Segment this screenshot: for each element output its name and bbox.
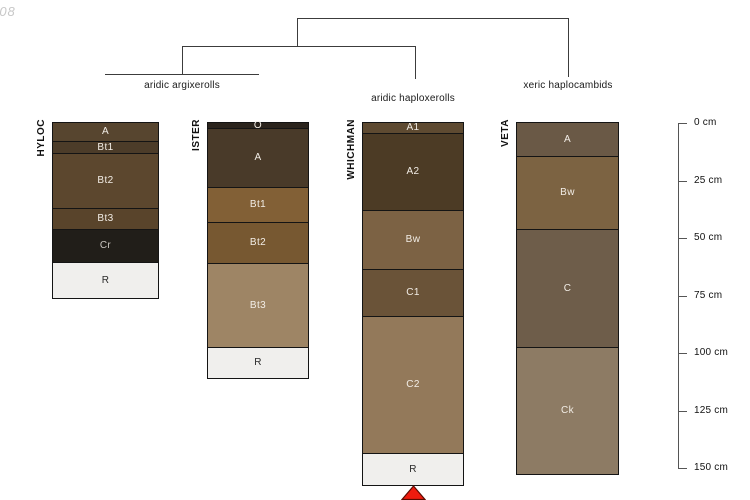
horizon-label: Bt3 [250, 301, 266, 311]
depth-tick [678, 296, 687, 297]
depth-tick [678, 353, 687, 354]
horizon-label: Bt2 [250, 238, 266, 248]
horizon-band: Bt2 [53, 153, 158, 208]
horizon-label: Bt2 [97, 176, 113, 186]
soil-profile-column: ABwCCk [516, 122, 619, 475]
marker-triangle-icon [401, 485, 426, 500]
horizon-label: C2 [406, 380, 420, 390]
depth-tick-label: 75 cm [694, 290, 722, 302]
depth-tick [678, 123, 687, 124]
horizon-band: R [363, 453, 463, 485]
depth-tick-label: 150 cm [694, 462, 728, 474]
depth-tick [678, 238, 687, 239]
depth-tick-label: 50 cm [694, 232, 722, 244]
horizon-label: C1 [406, 288, 420, 298]
group-label-aridic-haploxerolls: aridic haploxerolls [328, 93, 498, 104]
horizon-band: C2 [363, 316, 463, 453]
horizon-label: R [409, 465, 417, 475]
profile-name-label: HYLOC [36, 119, 47, 157]
horizon-band: A [208, 128, 308, 187]
dendrogram-line [568, 18, 569, 77]
horizon-label: Bw [406, 235, 421, 245]
soil-profile-column: ABt1Bt2Bt3CrR [52, 122, 159, 299]
horizon-label: A [564, 135, 571, 145]
horizon-band: Bt2 [208, 222, 308, 263]
dendrogram-line [297, 18, 569, 19]
horizon-label: R [254, 358, 262, 368]
horizon-band: Cr [53, 229, 158, 262]
dendrogram-line [182, 46, 416, 47]
horizon-label: A [254, 153, 261, 163]
depth-tick-label: 25 cm [694, 175, 722, 187]
group-label-xeric-haplocambids: xeric haplocambids [483, 80, 653, 91]
horizon-band: Bt1 [53, 141, 158, 153]
dendrogram-line [415, 46, 416, 79]
soil-profile-column: A1A2BwC1C2R [362, 122, 464, 486]
soil-profile-column: OABt1Bt2Bt3R [207, 122, 309, 379]
horizon-band: R [208, 347, 308, 378]
horizon-label: Bt3 [97, 214, 113, 224]
dendrogram-line [182, 46, 183, 75]
horizon-band: Bt1 [208, 187, 308, 222]
horizon-band: Bt3 [53, 208, 158, 229]
figure-canvas: -08 aridic argixerolls aridic haploxerol… [0, 0, 750, 500]
depth-tick-label: 0 cm [694, 117, 716, 129]
horizon-band: Bw [363, 210, 463, 269]
depth-tick-label: 100 cm [694, 347, 728, 359]
horizon-band: Bw [517, 156, 618, 229]
group-label-aridic-argixerolls: aridic argixerolls [97, 80, 267, 91]
horizon-band: A2 [363, 133, 463, 210]
horizon-band: A [517, 123, 618, 156]
horizon-band: C1 [363, 269, 463, 316]
watermark-text: -08 [0, 4, 16, 19]
depth-tick-label: 125 cm [694, 405, 728, 417]
horizon-band: A [53, 123, 158, 141]
horizon-label: A [102, 127, 109, 137]
horizon-band: A1 [363, 123, 463, 133]
horizon-label: Bt1 [97, 143, 113, 153]
horizon-band: Ck [517, 347, 618, 474]
profile-name-label: WHICHMAN [346, 119, 357, 180]
depth-tick [678, 468, 687, 469]
horizon-label: A1 [406, 123, 419, 133]
depth-tick [678, 181, 687, 182]
horizon-label: A2 [406, 167, 419, 177]
horizon-label: Bt1 [250, 200, 266, 210]
depth-tick [678, 411, 687, 412]
dendrogram-line [105, 74, 259, 75]
horizon-label: R [102, 276, 110, 286]
horizon-label: C [564, 284, 572, 294]
horizon-band: C [517, 229, 618, 347]
profile-name-label: VETA [500, 119, 511, 147]
profile-name-label: ISTER [191, 119, 202, 151]
horizon-label: Bw [560, 188, 575, 198]
horizon-label: Ck [561, 406, 574, 416]
horizon-band: R [53, 262, 158, 298]
horizon-band: Bt3 [208, 263, 308, 347]
dendrogram-line [297, 18, 298, 47]
horizon-label: Cr [100, 241, 111, 251]
